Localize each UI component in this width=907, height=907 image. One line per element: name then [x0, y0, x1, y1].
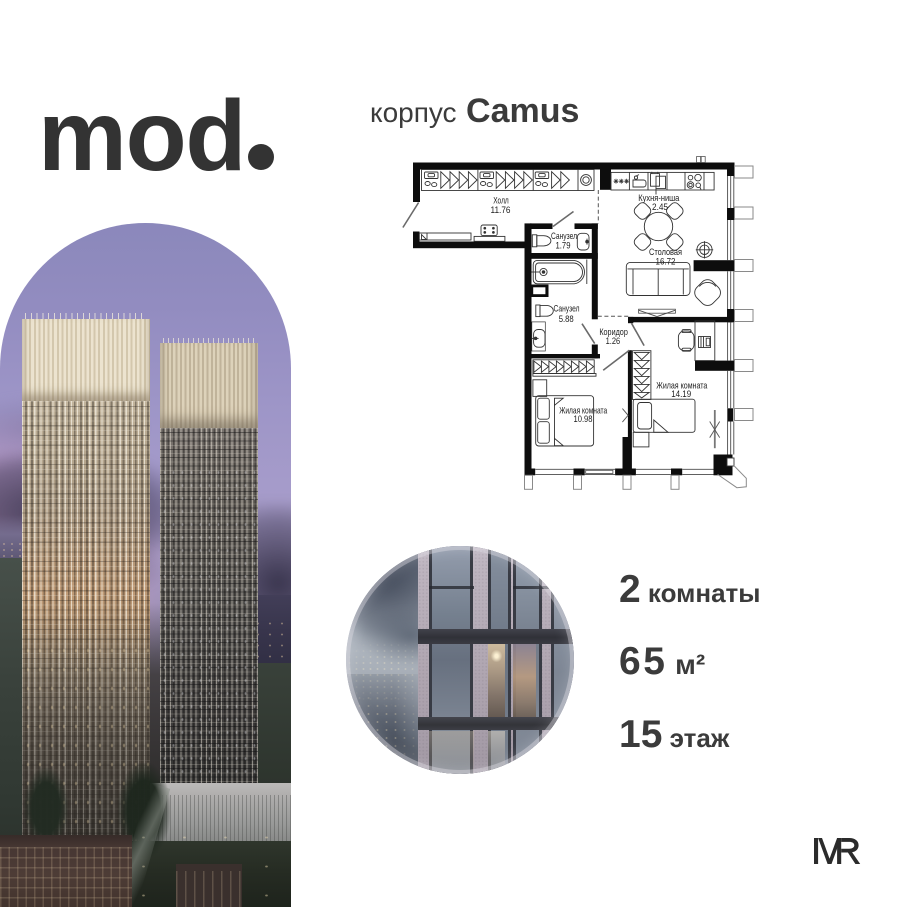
- svg-text:Санузел: Санузел: [551, 231, 577, 241]
- svg-text:Столовая: Столовая: [649, 247, 682, 257]
- svg-text:16.72: 16.72: [656, 257, 676, 267]
- svg-text:14.19: 14.19: [671, 389, 691, 399]
- svg-text:10.98: 10.98: [574, 414, 593, 424]
- svg-text:5.88: 5.88: [559, 314, 574, 324]
- svg-text:2.45: 2.45: [652, 202, 668, 212]
- svg-text:1.26: 1.26: [606, 336, 621, 346]
- svg-text:1.79: 1.79: [556, 241, 571, 251]
- svg-text:11.76: 11.76: [491, 205, 511, 215]
- svg-text:Санузел: Санузел: [554, 303, 580, 313]
